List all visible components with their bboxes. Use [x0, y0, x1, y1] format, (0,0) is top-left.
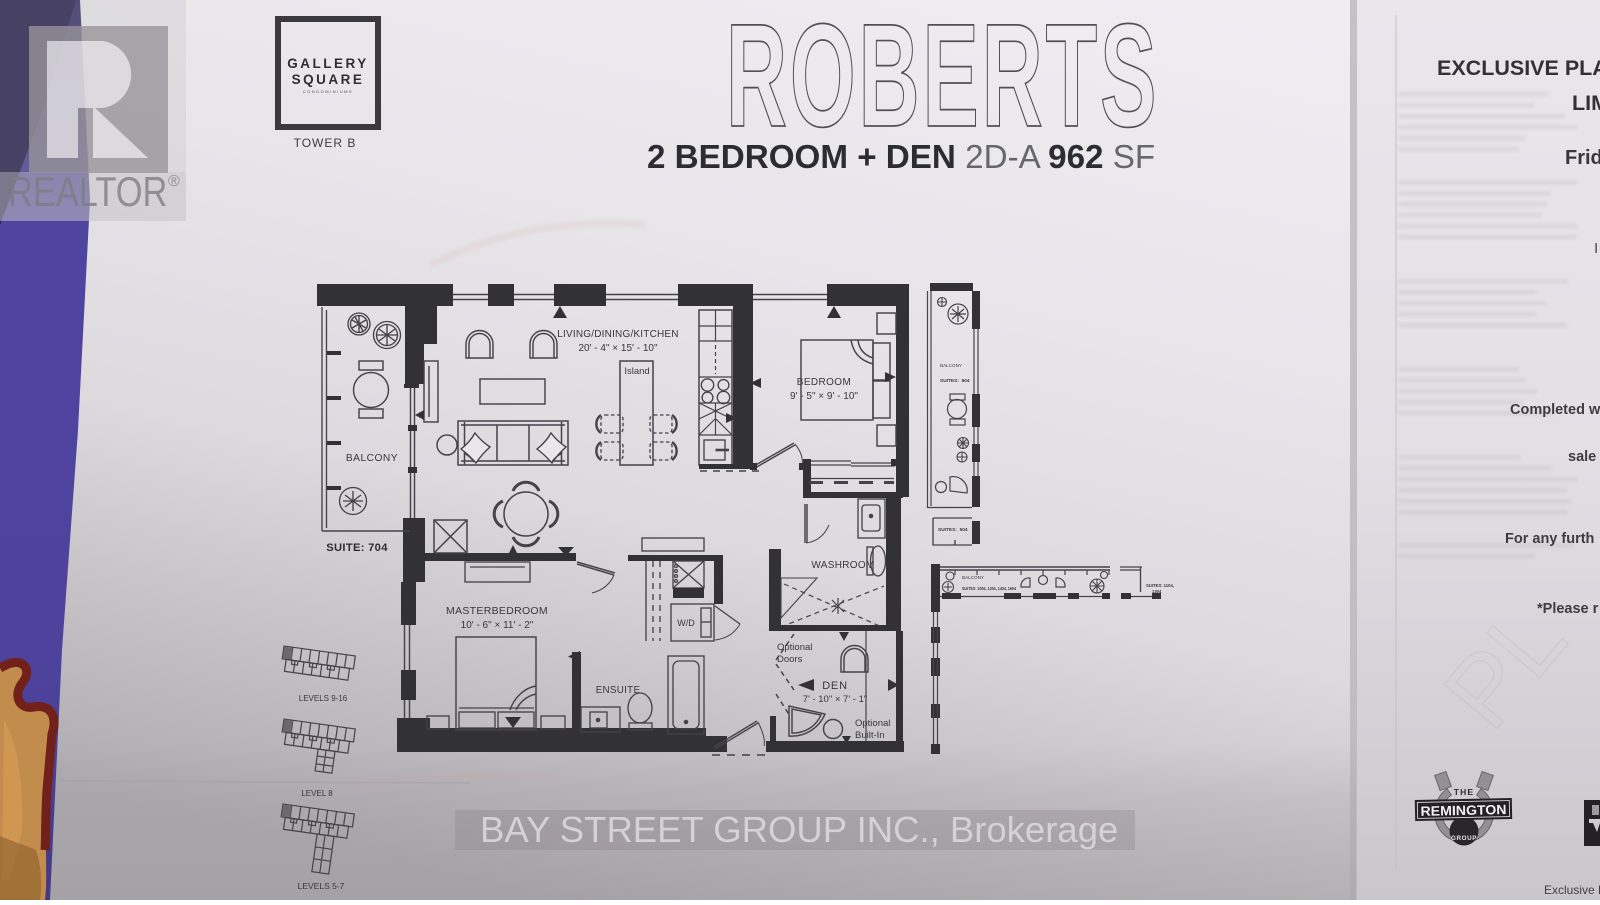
svg-text:SUITES: 504: SUITES: 504 — [938, 527, 968, 533]
svg-text:sale: sale — [1568, 449, 1596, 465]
svg-text:WASHROOM: WASHROOM — [811, 560, 874, 571]
svg-text:7' - 10" × 7' - 1": 7' - 10" × 7' - 1" — [803, 694, 868, 705]
svg-text:20' - 4" × 15' - 10": 20' - 4" × 15' - 10" — [578, 343, 657, 354]
svg-text:2 BEDROOM + DEN 2D-A 962 SF: 2 BEDROOM + DEN 2D-A 962 SF — [647, 139, 1155, 176]
svg-text:W/D: W/D — [677, 618, 695, 628]
svg-text:Built-In: Built-In — [855, 730, 885, 741]
svg-text:BALCONY: BALCONY — [962, 575, 984, 580]
svg-text:Optional: Optional — [777, 642, 812, 653]
svg-text:LEVELS 5-7: LEVELS 5-7 — [298, 881, 345, 891]
svg-text:BALCONY: BALCONY — [940, 363, 962, 368]
svg-text:SQUARE: SQUARE — [292, 72, 365, 87]
svg-text:Island: Island — [624, 366, 649, 377]
svg-text:LIVING/DINING/KITCHEN: LIVING/DINING/KITCHEN — [557, 329, 678, 340]
svg-text:SUITES: 1104,: SUITES: 1104, — [1146, 583, 1174, 588]
svg-text:Exclusive Listi: Exclusive Listi — [1544, 883, 1600, 897]
svg-text:Completed w: Completed w — [1510, 402, 1600, 418]
svg-text:For any furth: For any furth — [1505, 531, 1594, 547]
svg-text:SUITES: 1004, 1204, 1404, 1604: SUITES: 1004, 1204, 1404, 1604 — [962, 586, 1016, 591]
svg-text:DEN: DEN — [822, 680, 848, 692]
svg-text:CONDOMINIUMS: CONDOMINIUMS — [303, 89, 353, 94]
svg-text:SUITES: 604: SUITES: 604 — [940, 378, 970, 384]
svg-text:LEVELS 9-16: LEVELS 9-16 — [299, 694, 348, 703]
svg-text:10' - 6" × 11' - 2": 10' - 6" × 11' - 2" — [461, 620, 534, 631]
svg-text:BALCONY: BALCONY — [346, 453, 398, 464]
svg-text:SUITE: 704: SUITE: 704 — [326, 542, 388, 554]
svg-text:BEDROOM: BEDROOM — [797, 377, 851, 388]
svg-text:REALTOR: REALTOR — [8, 169, 167, 216]
svg-text:GALLERY: GALLERY — [287, 56, 369, 71]
svg-text:BAY STREET GROUP INC., Brokera: BAY STREET GROUP INC., Brokerage — [480, 809, 1118, 850]
svg-text:LEVEL 8: LEVEL 8 — [301, 789, 333, 798]
svg-text:Doors: Doors — [777, 654, 803, 665]
svg-text:REMINGTON: REMINGTON — [1420, 802, 1506, 819]
svg-text:*Please r: *Please r — [1537, 601, 1599, 617]
svg-text:1304: 1304 — [1152, 589, 1162, 594]
svg-text:EXCLUSIVE PLA: EXCLUSIVE PLA — [1437, 56, 1600, 80]
svg-text:Frid: Frid — [1565, 147, 1600, 169]
svg-text:Optional: Optional — [855, 718, 890, 729]
svg-text:ROBERTS: ROBERTS — [726, 0, 1159, 158]
svg-text:TOWER B: TOWER B — [294, 136, 357, 150]
svg-text:THE: THE — [1454, 787, 1475, 797]
svg-text:LIM: LIM — [1572, 91, 1600, 115]
svg-text:MASTERBEDROOM: MASTERBEDROOM — [446, 605, 548, 617]
svg-text:GROUP: GROUP — [1451, 835, 1477, 842]
svg-text:I: I — [1594, 240, 1598, 257]
svg-text:®: ® — [168, 173, 180, 190]
